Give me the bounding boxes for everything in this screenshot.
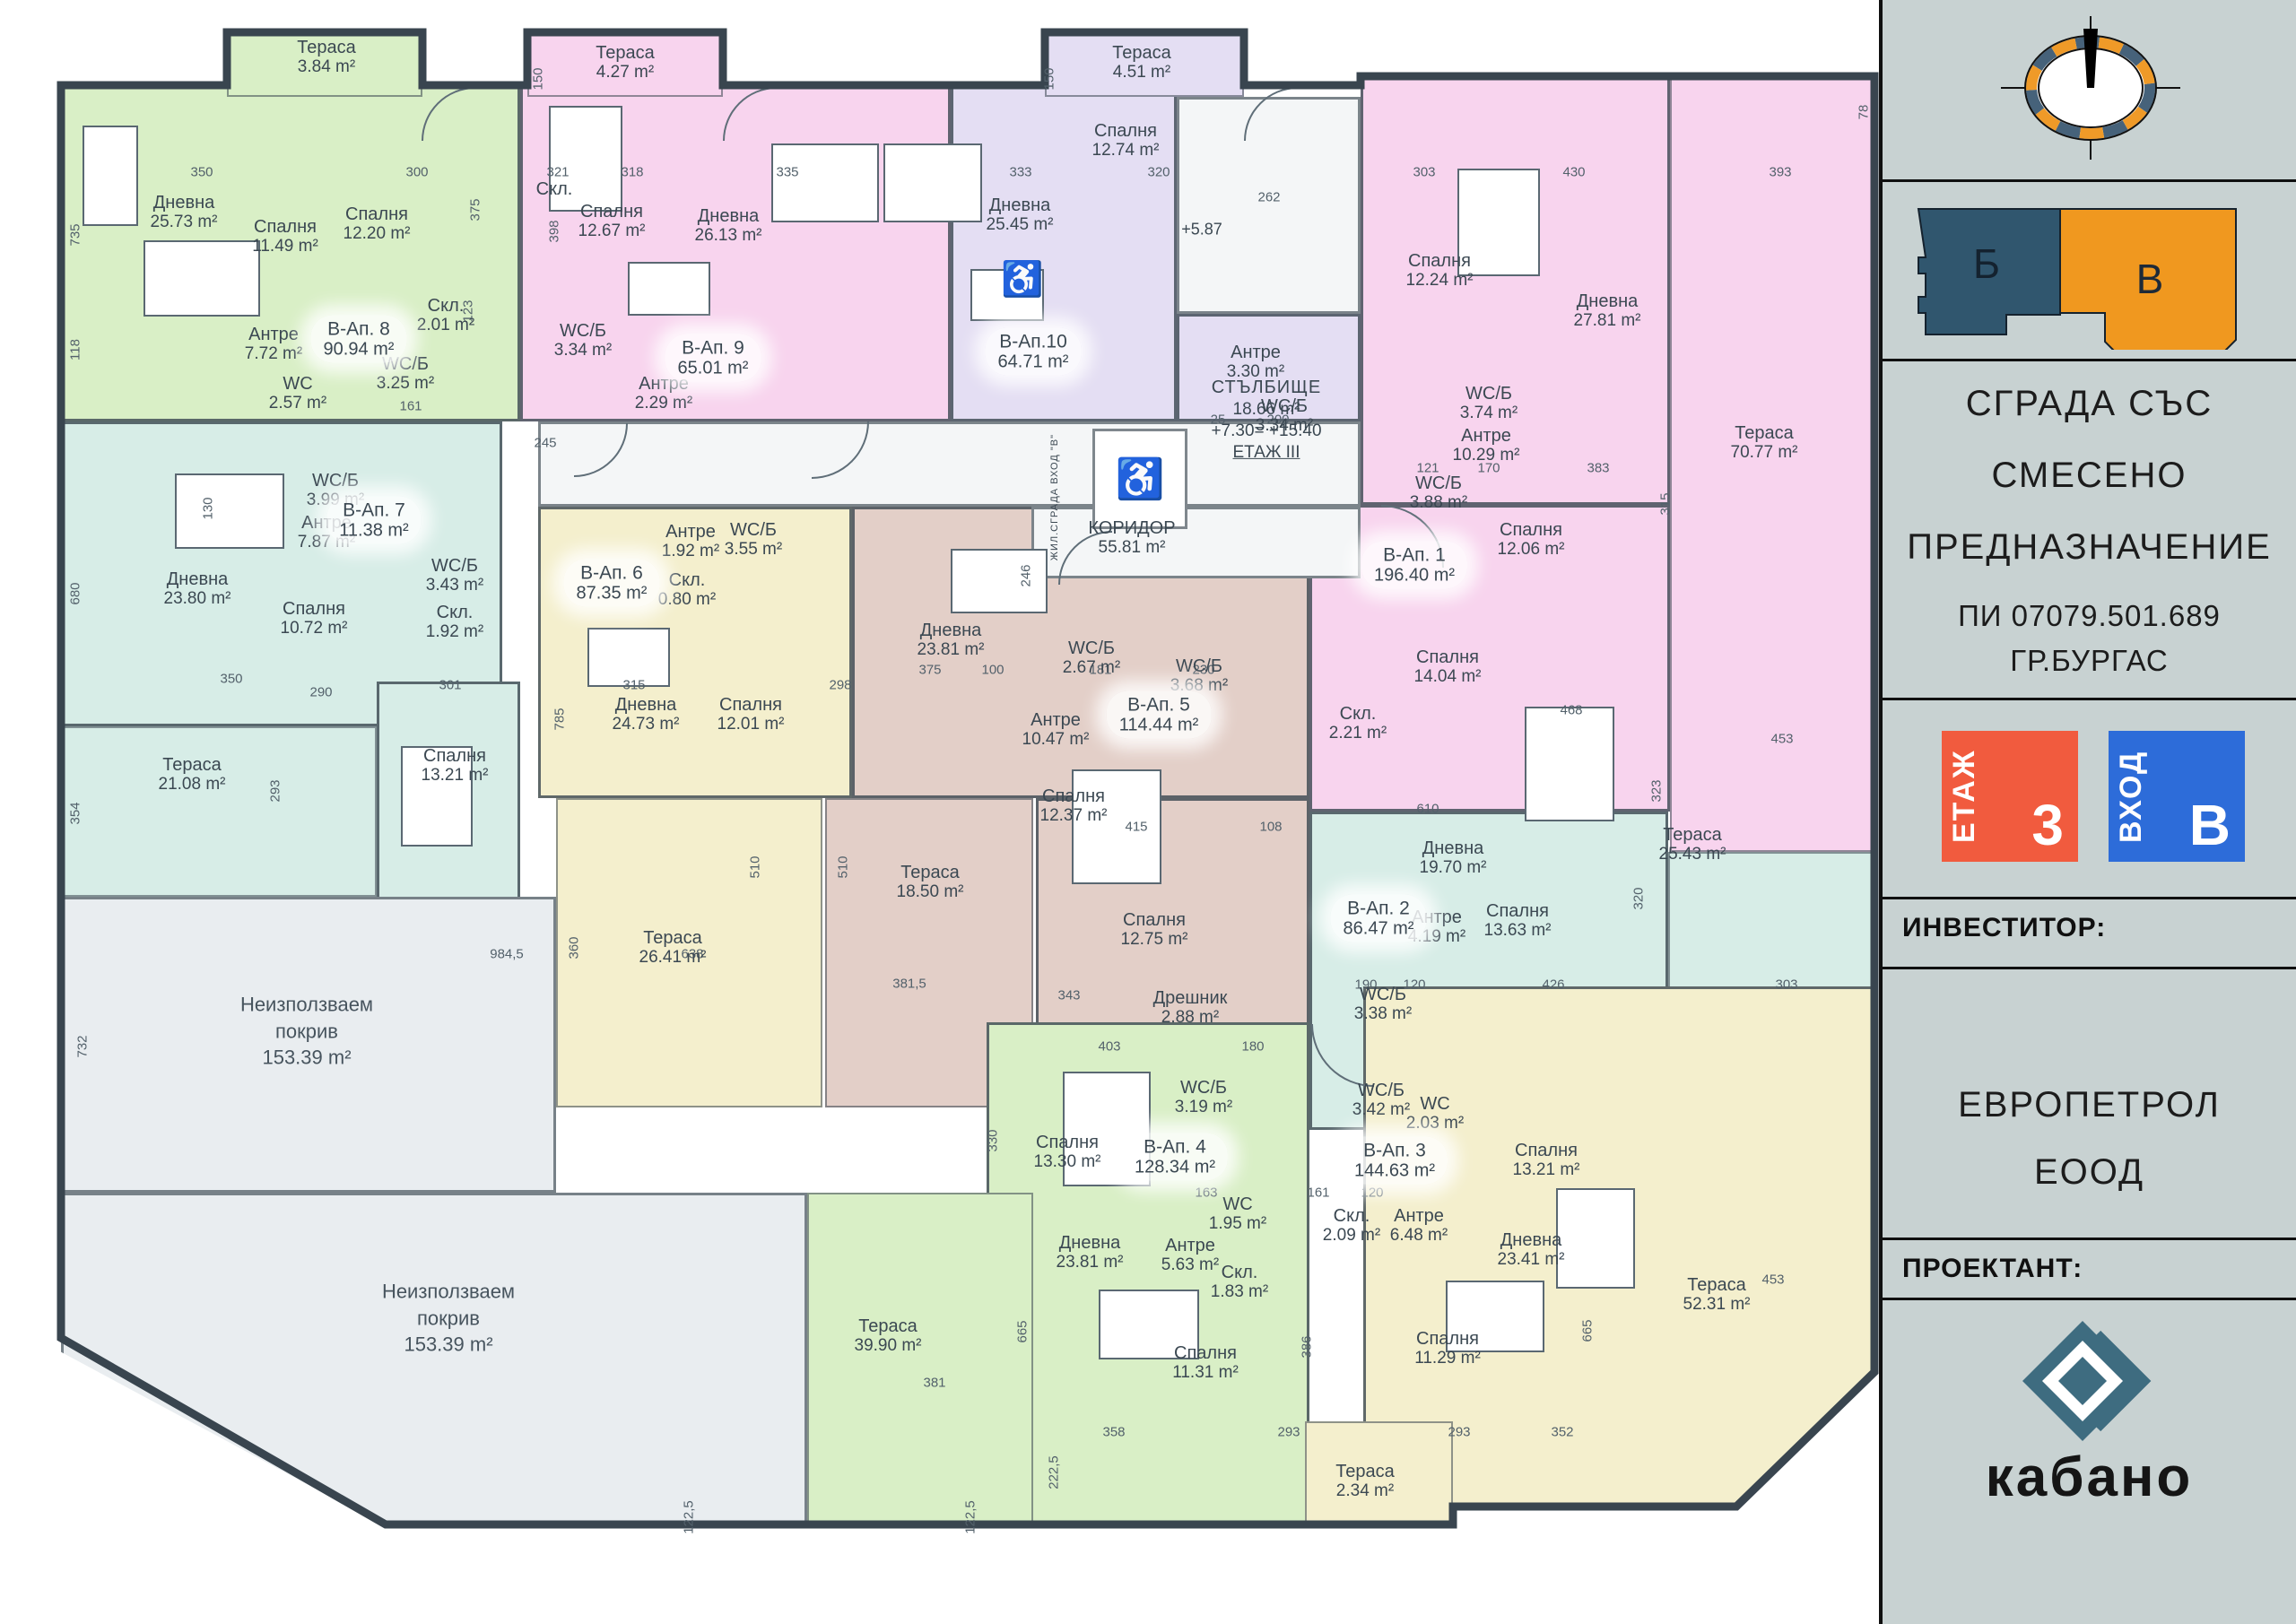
room-label-ap10: Спалня12.74 m² xyxy=(1092,122,1160,160)
apartment-number: В-Ап. 6 xyxy=(577,562,648,583)
dimension-label: 150 xyxy=(1042,67,1057,90)
room-area: 3.88 m² xyxy=(1410,494,1467,513)
staircase-area: 18.66 m² xyxy=(1211,399,1321,421)
room-label-ap8: Антре7.72 m² xyxy=(245,326,302,363)
room-label-ap4: Спалня11.31 m² xyxy=(1172,1344,1239,1382)
room-name: Спалня xyxy=(1498,521,1565,541)
building-key-diagram: Б В xyxy=(1908,193,2275,350)
investor-name-line2: ЕООД xyxy=(1883,1152,2296,1193)
apartment-region-ap7 xyxy=(61,726,377,897)
room-name: Спалня xyxy=(1121,911,1188,931)
room-area: 2.09 m² xyxy=(1323,1227,1380,1246)
dimension-label: 300 xyxy=(405,165,428,180)
room-area: 19.70 m² xyxy=(1420,859,1487,878)
room-name: Дневна xyxy=(613,696,680,716)
room-area: 12.01 m² xyxy=(717,716,785,734)
apartment-number: В-Ап. 8 xyxy=(324,318,395,339)
room-name: Дневна xyxy=(987,196,1054,216)
dimension-label: 665 xyxy=(1015,1320,1031,1342)
room-name: Спалня xyxy=(1172,1344,1239,1364)
room-name: WC/Б xyxy=(554,322,612,342)
dimension-label: 453 xyxy=(1770,732,1793,747)
dimension-label: 350 xyxy=(220,672,242,687)
room-name: Дневна xyxy=(151,194,218,213)
dimension-label: 100 xyxy=(981,663,1004,678)
apartment-number: В-Ап. 2 xyxy=(1344,898,1414,918)
entrance-badge-value: В xyxy=(2189,792,2231,858)
apartment-area: 196.40 m² xyxy=(1374,566,1455,586)
room-name: Тераса xyxy=(596,44,655,64)
divider xyxy=(1883,359,2296,361)
elevation-mark: +5.87 xyxy=(1181,221,1222,239)
room-area: 10.47 m² xyxy=(1022,731,1090,750)
room-label-ap10: Дневна25.45 m² xyxy=(987,196,1054,234)
room-label-ap3: Спалня13.21 m² xyxy=(1513,1142,1580,1179)
dimension-label: 161 xyxy=(1307,1185,1329,1201)
room-area: 25.45 m² xyxy=(987,216,1054,235)
room-label-ap4: Скл.1.83 m² xyxy=(1211,1264,1268,1301)
room-area: 3.55 m² xyxy=(725,541,782,560)
room-area: 13.21 m² xyxy=(422,767,489,786)
room-label-ap9: Спалня12.67 m² xyxy=(578,203,646,240)
room-name: Тераса xyxy=(1335,1463,1395,1482)
room-area: 52.31 m² xyxy=(1683,1296,1751,1315)
room-label-ap7: Скл.1.92 m² xyxy=(426,604,483,641)
floorplan-page: Тераса3.84 m²Дневна25.73 m²Спалня11.49 m… xyxy=(0,0,2296,1624)
apartment-badge-ap5: В-Ап. 5114.44 m² xyxy=(1107,690,1212,738)
room-area: 21.08 m² xyxy=(159,776,226,795)
room-name: Скл. xyxy=(658,571,716,591)
room-name: Спалня xyxy=(252,218,318,238)
dimension-label: 984,5 xyxy=(490,947,524,962)
dimension-label: 381 xyxy=(923,1376,945,1391)
room-label-ap8: Скл.2.01 m² xyxy=(417,297,474,334)
dimension-label: 321 xyxy=(546,165,569,180)
room-label-ap2: WC/Б3.38 m² xyxy=(1354,986,1412,1023)
wheelchair-icon: ♿ xyxy=(1001,260,1043,300)
room-area: 12.06 m² xyxy=(1498,541,1565,560)
apartment-number: В-Ап. 3 xyxy=(1354,1140,1435,1160)
room-label-ap5: Тераса18.50 m² xyxy=(897,864,964,901)
room-area: 4.27 m² xyxy=(596,64,655,83)
room-label-ap8: WC2.57 m² xyxy=(269,375,326,413)
room-area: 11.29 m² xyxy=(1414,1350,1481,1368)
room-label-ap7: Спалня10.72 m² xyxy=(281,600,348,638)
room-label-ap1: Спалня14.04 m² xyxy=(1414,648,1482,686)
room-label-ap7: WC/Б3.43 m² xyxy=(426,557,483,595)
dimension-label: 122,5 xyxy=(963,1500,978,1534)
room-label-ap9: Скл. xyxy=(536,180,573,200)
room-label-ap4: Дневна23.81 m² xyxy=(1057,1234,1124,1272)
room-name: Спалня xyxy=(422,747,489,767)
furniture xyxy=(628,262,710,316)
room-area: 6.48 m² xyxy=(1390,1227,1448,1246)
room-area: 3.74 m² xyxy=(1460,404,1518,423)
dimension-label: 680 xyxy=(68,582,83,604)
room-label-ap4: Спалня13.30 m² xyxy=(1034,1133,1101,1171)
room-area: 26.41 m² xyxy=(639,949,707,968)
room-area: 13.21 m² xyxy=(1513,1161,1580,1180)
floor-badge: ЕТАЖ 3 xyxy=(1942,731,2078,862)
room-area: 70.77 m² xyxy=(1731,444,1798,463)
door-swing-arc xyxy=(1244,87,1298,141)
furniture xyxy=(83,126,138,226)
dimension-label: 318 xyxy=(621,165,643,180)
room-name: Тераса xyxy=(639,929,707,949)
divider xyxy=(1883,698,2296,700)
common-region xyxy=(61,1193,807,1524)
apartment-badge-ap4: В-Ап. 4128.34 m² xyxy=(1122,1133,1228,1180)
room-label-ap1: Спалня12.24 m² xyxy=(1406,252,1474,290)
divider xyxy=(1883,897,2296,899)
dimension-label: 386 xyxy=(1300,1335,1315,1358)
dimension-label: 118 xyxy=(68,339,83,360)
dimension-label: 610 xyxy=(1416,802,1439,817)
room-area: 2.57 m² xyxy=(269,395,326,413)
room-area: 3.38 m² xyxy=(1354,1005,1412,1024)
title-block-sidebar: Б В СГРАДА СЪС СМЕСЕНО ПРЕДНАЗНАЧЕНИЕ ПИ… xyxy=(1879,0,2296,1624)
room-area: 2.88 m² xyxy=(1153,1009,1228,1028)
apartment-area: 128.34 m² xyxy=(1135,1158,1215,1177)
room-name: Антре xyxy=(245,326,302,345)
room-area: 2.29 m² xyxy=(635,395,692,413)
room-area: 10.29 m² xyxy=(1453,447,1520,465)
room-name: Дневна xyxy=(1574,292,1641,312)
room-label-ap8: Спалня12.20 m² xyxy=(344,205,411,243)
dimension-label: 246 xyxy=(1019,564,1034,586)
kabano-logo-icon xyxy=(2015,1314,2168,1448)
entrance-badge: ВХОД В xyxy=(2109,731,2245,862)
room-label-ap9: WC/Б3.34 m² xyxy=(554,322,612,360)
room-name: Спалня xyxy=(1484,902,1552,922)
dimension-label: 393 xyxy=(1769,165,1791,180)
room-area: 12.67 m² xyxy=(578,222,646,241)
room-area: 0.80 m² xyxy=(658,591,716,610)
dimension-label: 358 xyxy=(1102,1425,1125,1440)
furniture xyxy=(1556,1188,1635,1289)
room-label-ap4: WC1.95 m² xyxy=(1209,1195,1266,1233)
room-name: Дневна xyxy=(1057,1234,1124,1254)
room-name: Тераса xyxy=(1659,826,1726,846)
staircase-name: СТЪЛБИЩЕ xyxy=(1211,377,1321,399)
dimension-label: 78 xyxy=(1857,105,1872,120)
dimension-label: 665 xyxy=(1580,1319,1596,1342)
apartment-badge-ap10: В-Ап.1064.71 m² xyxy=(986,327,1082,375)
room-name: Спалня xyxy=(1406,252,1474,272)
room-area: 25.43 m² xyxy=(1659,846,1726,864)
room-label-ap4: Тераса39.90 m² xyxy=(855,1317,922,1355)
dimension-label: 293 xyxy=(268,779,283,802)
dimension-label: 735 xyxy=(68,223,83,246)
room-name: Спалня xyxy=(1414,648,1482,668)
room-area: 25.73 m² xyxy=(151,213,218,232)
room-area: 39.90 m² xyxy=(855,1337,922,1356)
dimension-label: 150 xyxy=(531,67,546,90)
parcel-number: ПИ 07079.501.689 xyxy=(1883,599,2296,633)
room-area: 1.92 m² xyxy=(662,543,719,561)
furniture xyxy=(1525,707,1614,821)
room-name: WC/Б xyxy=(1460,385,1518,404)
room-area: 12.20 m² xyxy=(344,225,411,244)
room-name: WC xyxy=(1209,1195,1266,1215)
room-name: Антре xyxy=(1161,1237,1219,1256)
room-area: 3.19 m² xyxy=(1175,1099,1232,1117)
compass-icon xyxy=(2001,16,2180,160)
room-name: Скл. xyxy=(536,180,573,200)
floor-badge-value: 3 xyxy=(2031,792,2064,858)
room-label-ap1: Тераса70.77 m² xyxy=(1731,424,1798,462)
apartment-number: В-Ап. 9 xyxy=(678,337,749,358)
room-name: Дневна xyxy=(164,570,231,590)
room-area: 2.21 m² xyxy=(1329,725,1387,743)
divider xyxy=(1883,967,2296,969)
apartment-number: В-Ап. 1 xyxy=(1374,544,1455,565)
room-area: 3.43 m² xyxy=(426,577,483,595)
room-name: WC/Б xyxy=(1170,657,1228,677)
dimension-label: 375 xyxy=(468,198,483,221)
room-name: WC/Б xyxy=(1352,1081,1410,1101)
dimension-label: 315 xyxy=(1658,492,1674,515)
room-area: 12.74 m² xyxy=(1092,142,1160,161)
room-area: 23.81 m² xyxy=(918,641,985,660)
room-name: Тераса xyxy=(297,39,356,58)
dimension-label: 415 xyxy=(1125,820,1147,835)
divider xyxy=(1883,1238,2296,1240)
dimension-label: 468 xyxy=(1560,703,1582,718)
dimension-label: 315 xyxy=(622,678,645,693)
room-label-ap1: Скл.2.21 m² xyxy=(1329,705,1387,743)
apartment-area: 87.35 m² xyxy=(577,584,648,604)
dimension-label: 398 xyxy=(547,220,562,242)
dimension-label: 320 xyxy=(1631,887,1647,909)
furniture xyxy=(175,473,284,549)
investor-name-line1: ЕВРОПЕТРОЛ xyxy=(1883,1085,2296,1125)
room-label-ap9: Тераса4.27 m² xyxy=(596,44,655,82)
apartment-number: В-Ап. 4 xyxy=(1135,1136,1215,1157)
room-label-ap10: Антре3.30 m² xyxy=(1227,343,1284,381)
dimension-label: 298 xyxy=(829,678,851,693)
dimension-label: 161 xyxy=(399,399,422,414)
room-name: WC/Б xyxy=(307,472,364,491)
apartment-area: 11.38 m² xyxy=(339,521,408,541)
room-label-ap3: Тераса52.31 m² xyxy=(1683,1276,1751,1314)
dimension-label: 303 xyxy=(1413,165,1435,180)
dimension-label: 343 xyxy=(1057,988,1080,1003)
room-name: Спалня xyxy=(578,203,646,222)
apartment-number: В-Ап. 7 xyxy=(339,499,408,520)
sheet-title-line3: ПРЕДНАЗНАЧЕНИЕ xyxy=(1883,527,2296,568)
room-label-ap5: Спалня12.37 m² xyxy=(1040,787,1108,825)
room-name: Дневна xyxy=(695,207,762,227)
room-area: 2.03 m² xyxy=(1406,1115,1464,1133)
room-label-ap5: Спалня12.75 m² xyxy=(1121,911,1188,949)
room-area: 2.34 m² xyxy=(1335,1482,1395,1501)
furniture xyxy=(883,143,982,222)
unused-roof-label: Неизползваемпокрив153.39 m² xyxy=(382,1278,515,1358)
room-name: Спалня xyxy=(1092,122,1160,142)
room-label-ap3: Спалня11.29 m² xyxy=(1414,1330,1481,1368)
apartment-badge-ap7: В-Ап. 711.38 m² xyxy=(326,496,421,543)
dimension-label: 453 xyxy=(1761,1272,1784,1288)
room-area: 24.73 m² xyxy=(613,716,680,734)
dimension-label: 301 xyxy=(439,678,461,693)
dimension-label: 222,5 xyxy=(1047,1455,1062,1489)
room-name: WC/Б xyxy=(725,521,782,541)
room-name: Тераса xyxy=(1112,44,1171,64)
room-area: 3.34 m² xyxy=(554,342,612,360)
staircase-level: +7.30= +15.40 xyxy=(1211,421,1321,442)
dimension-label: 290 xyxy=(309,685,332,700)
apartment-badge-ap9: В-Ап. 965.01 m² xyxy=(665,334,761,381)
dimension-label: 330 xyxy=(986,1129,1001,1151)
sheet-title-line1: СГРАДА СЪС xyxy=(1883,384,2296,424)
room-name: Скл. xyxy=(1323,1207,1380,1227)
room-label-ap10: Тераса4.51 m² xyxy=(1112,44,1171,82)
room-label-ap4: WC/Б3.19 m² xyxy=(1175,1079,1232,1116)
room-label-ap1: WC/Б3.88 m² xyxy=(1410,474,1467,512)
room-name: Дрешник xyxy=(1153,989,1228,1009)
divider xyxy=(1883,1298,2296,1300)
room-label-ap1: Дневна27.81 m² xyxy=(1574,292,1641,330)
room-label-ap5: Дрешник2.88 m² xyxy=(1153,989,1228,1027)
room-area: 18.50 m² xyxy=(897,883,964,902)
investor-label: ИНВЕСТИТОР: xyxy=(1902,913,2106,943)
room-area: 11.31 m² xyxy=(1172,1364,1239,1383)
divider xyxy=(1883,179,2296,182)
room-name: Тераса xyxy=(1731,424,1798,444)
room-name: WC/Б xyxy=(1175,1079,1232,1099)
apartment-badge-ap3: В-Ап. 3144.63 m² xyxy=(1342,1136,1448,1184)
dimension-label: 293 xyxy=(1277,1425,1300,1440)
dimension-label: 354 xyxy=(68,802,83,824)
room-name: Спалня xyxy=(344,205,411,225)
room-label-ap3: Скл.2.09 m² xyxy=(1323,1207,1380,1245)
room-label-ap5: Антре10.47 m² xyxy=(1022,711,1090,749)
staircase-floor: ЕТАЖ III xyxy=(1211,441,1321,463)
room-area: 3.25 m² xyxy=(377,375,434,394)
room-name: Антре xyxy=(1022,711,1090,731)
dimension-label: 120 xyxy=(1361,1185,1383,1201)
room-name: Спалня xyxy=(1513,1142,1580,1161)
dimension-label: 350 xyxy=(190,165,213,180)
parcel-city: ГР.БУРГАС xyxy=(1883,644,2296,678)
room-label-ap7: Тераса21.08 m² xyxy=(159,756,226,794)
room-name: Скл. xyxy=(1211,1264,1268,1283)
apartment-area: 64.71 m² xyxy=(998,352,1069,372)
dimension-label: 130 xyxy=(201,497,216,519)
room-name: Тераса xyxy=(1683,1276,1751,1296)
kabano-logo-text: кабано xyxy=(1883,1446,2296,1509)
room-name: Спалня xyxy=(1034,1133,1101,1153)
apartment-area: 144.63 m² xyxy=(1354,1161,1435,1181)
room-name: Тераса xyxy=(897,864,964,883)
unused-roof-label: Неизползваемпокрив153.39 m² xyxy=(240,991,373,1071)
room-label-ap3: Антре6.48 m² xyxy=(1390,1207,1448,1245)
room-area: 13.63 m² xyxy=(1484,922,1552,941)
floor-badge-label: ЕТАЖ xyxy=(1947,736,1982,856)
room-area: 3.42 m² xyxy=(1352,1101,1410,1120)
apartment-number: В-Ап.10 xyxy=(998,331,1069,352)
dimension-label: 180 xyxy=(1241,1039,1264,1055)
room-area: 23.81 m² xyxy=(1057,1254,1124,1272)
designer-label: ПРОЕКТАНТ: xyxy=(1902,1254,2083,1284)
room-name: Спалня xyxy=(1414,1330,1481,1350)
room-area: 26.13 m² xyxy=(695,227,762,246)
dimension-label: 360 xyxy=(567,936,582,959)
wheelchair-icon: ♿ xyxy=(1116,456,1165,502)
room-name: Спалня xyxy=(717,696,785,716)
apartment-region-ap4 xyxy=(807,1193,1033,1524)
dimension-label: 293 xyxy=(1448,1425,1470,1440)
room-label-ap3: WC/Б3.42 m² xyxy=(1352,1081,1410,1119)
room-label-ap6: Спалня12.01 m² xyxy=(717,696,785,734)
room-name: WC xyxy=(1406,1095,1464,1115)
dimension-label: 510 xyxy=(836,855,851,878)
room-label-ap9: Дневна26.13 m² xyxy=(695,207,762,245)
room-area: 27.81 m² xyxy=(1574,312,1641,331)
room-label-ap1: Спалня12.06 m² xyxy=(1498,521,1565,559)
apartment-number: В-Ап. 5 xyxy=(1119,694,1199,715)
room-label-ap7: Спалня13.21 m² xyxy=(422,747,489,785)
room-label-ap6: Дневна24.73 m² xyxy=(613,696,680,734)
room-label-ap6: WC/Б3.55 m² xyxy=(725,521,782,559)
apartment-area: 86.47 m² xyxy=(1344,919,1414,939)
dimension-label: 403 xyxy=(1098,1039,1120,1055)
room-area: 2.67 m² xyxy=(1063,659,1120,678)
room-name: Скл. xyxy=(417,297,474,317)
room-name: Тераса xyxy=(159,756,226,776)
room-area: 12.37 m² xyxy=(1040,807,1108,826)
staircase-label: СТЪЛБИЩЕ18.66 m²+7.30= +15.40ЕТАЖ III xyxy=(1211,377,1321,463)
room-area: 23.41 m² xyxy=(1498,1251,1565,1270)
dimension-label: 383 xyxy=(1587,461,1609,476)
room-name: Дневна xyxy=(918,621,985,641)
apartment-badge-ap8: В-Ап. 890.94 m² xyxy=(311,315,407,362)
room-area: 11.49 m² xyxy=(252,238,318,256)
room-name: Дневна xyxy=(1498,1231,1565,1251)
dimension-label: 108 xyxy=(1259,820,1282,835)
dimension-label: 375 xyxy=(918,663,941,678)
room-area: 2.01 m² xyxy=(417,317,474,335)
dimension-label: 426 xyxy=(1542,977,1564,993)
entrance-badge-label: ВХОД xyxy=(2114,736,2149,856)
room-label-ap3: Тераса2.34 m² xyxy=(1335,1463,1395,1500)
dimension-label: 323 xyxy=(1649,779,1665,802)
dimension-label: 732 xyxy=(75,1035,91,1057)
room-area: 3.84 m² xyxy=(297,58,356,77)
dimension-label: 245 xyxy=(534,436,556,451)
apartment-area: 114.44 m² xyxy=(1119,716,1199,735)
apartment-badge-ap6: В-Ап. 687.35 m² xyxy=(564,559,660,606)
room-label-ap3: WC2.03 m² xyxy=(1406,1095,1464,1133)
room-name: WC/Б xyxy=(1063,639,1120,659)
room-name: Тераса xyxy=(855,1317,922,1337)
room-label-ap8: Дневна25.73 m² xyxy=(151,194,218,231)
room-area: 4.51 m² xyxy=(1112,64,1171,83)
dimension-label: 510 xyxy=(748,855,763,878)
room-label-ap1: WC/Б3.74 m² xyxy=(1460,385,1518,422)
room-label-ap8: Спалня11.49 m² xyxy=(252,218,318,256)
room-name: Дневна xyxy=(1420,839,1487,859)
room-area: 1.92 m² xyxy=(426,623,483,642)
room-label-ap1: Антре10.29 m² xyxy=(1453,427,1520,465)
room-label-ap6: Скл.0.80 m² xyxy=(658,571,716,609)
dimension-label: 335 xyxy=(776,165,798,180)
room-label-ap5: WC/Б3.68 m² xyxy=(1170,657,1228,695)
dimension-label: 785 xyxy=(552,708,568,730)
room-label-ap3: Дневна23.41 m² xyxy=(1498,1231,1565,1269)
floor-plan: Тераса3.84 m²Дневна25.73 m²Спалня11.49 m… xyxy=(0,0,1879,1624)
